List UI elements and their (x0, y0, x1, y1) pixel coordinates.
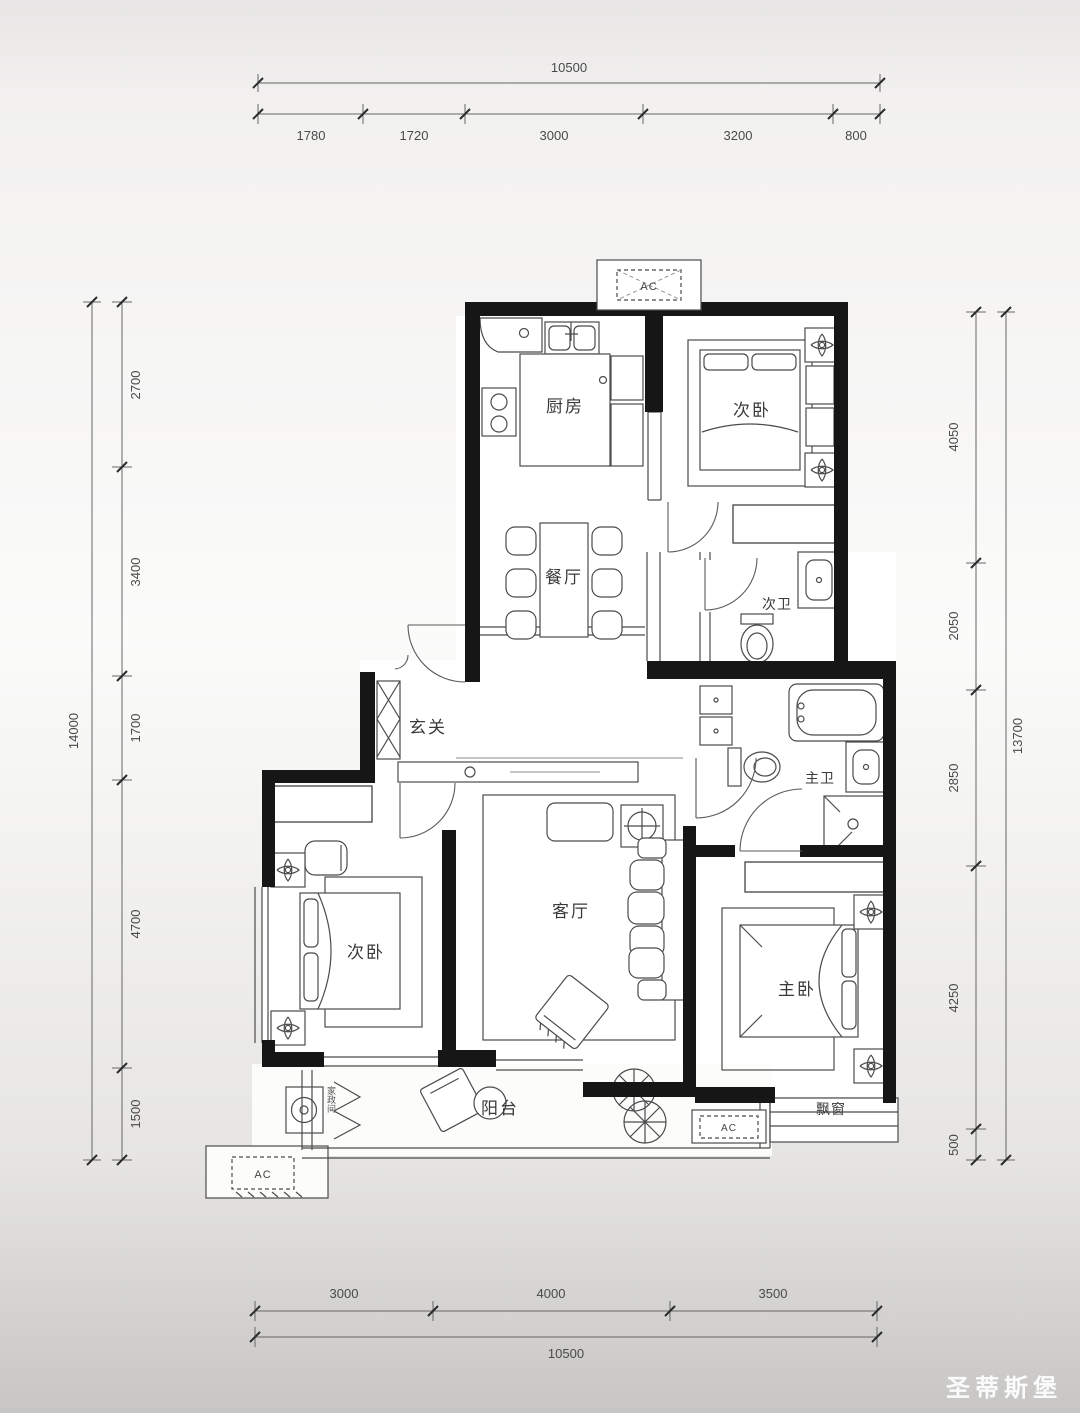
dim-bottom-seg-1: 4000 (537, 1286, 566, 1301)
ac-label-bottom-left: AC (254, 1169, 271, 1181)
dim-left-seg-1: 3400 (128, 558, 143, 587)
dim-right-seg-1: 2050 (946, 612, 961, 641)
dim-left-seg-3: 4700 (128, 910, 143, 939)
label-living: 客厅 (552, 902, 590, 921)
dim-left-total: 14000 (66, 713, 81, 749)
dim-top-seg-2: 3000 (540, 128, 569, 143)
label-bedroom-top: 次卧 (733, 401, 771, 420)
dim-top-seg-0: 1780 (297, 128, 326, 143)
ac-unit-bottom-center: AC (692, 1110, 766, 1143)
dim-bottom-total: 10500 (548, 1346, 584, 1361)
dim-right-total: 13700 (1010, 718, 1025, 754)
floor-plan-page: AC AC AC 厨房 次卧 餐厅 次卫 玄关 次卧 客厅 主卫 主卧 阳台 飘… (0, 0, 1080, 1413)
dim-bottom-seg-0: 3000 (330, 1286, 359, 1301)
floor-plan-svg: AC AC AC 厨房 次卧 餐厅 次卫 玄关 次卧 客厅 主卫 主卧 阳台 飘… (0, 0, 1080, 1413)
dim-left-seg-0: 2700 (128, 371, 143, 400)
label-foyer: 玄关 (409, 718, 447, 737)
dim-top-total: 10500 (551, 60, 587, 75)
watermark-text: 圣蒂斯堡 (946, 1375, 1062, 1402)
label-balcony: 阳台 (481, 1099, 519, 1118)
dim-right-seg-2: 2850 (946, 764, 961, 793)
dim-top-seg-4: 800 (845, 128, 867, 143)
label-kitchen: 厨房 (546, 397, 584, 416)
dim-top-seg-3: 3200 (724, 128, 753, 143)
label-master-bedroom: 主卧 (778, 980, 816, 999)
ac-label-bottom-center: AC (721, 1123, 737, 1134)
label-master-bath: 主卫 (805, 770, 835, 786)
ac-label-top: AC (640, 281, 657, 293)
label-laundry: 家政间 (326, 1085, 336, 1114)
ac-unit-top: AC (597, 260, 701, 310)
dim-left-seg-4: 1500 (128, 1100, 143, 1129)
foyer-cabinet (377, 681, 400, 759)
dim-right-seg-3: 4250 (946, 984, 961, 1013)
dim-right-seg-0: 4050 (946, 423, 961, 452)
dim-right-seg-4: 500 (946, 1134, 961, 1156)
label-dining: 餐厅 (545, 568, 583, 587)
dim-top-seg-1: 1720 (400, 128, 429, 143)
label-bay-window: 飘窗 (816, 1101, 846, 1117)
label-bath2: 次卫 (762, 596, 792, 612)
dim-left-seg-2: 1700 (128, 714, 143, 743)
dim-bottom-seg-2: 3500 (759, 1286, 788, 1301)
label-bedroom-left: 次卧 (347, 943, 385, 962)
